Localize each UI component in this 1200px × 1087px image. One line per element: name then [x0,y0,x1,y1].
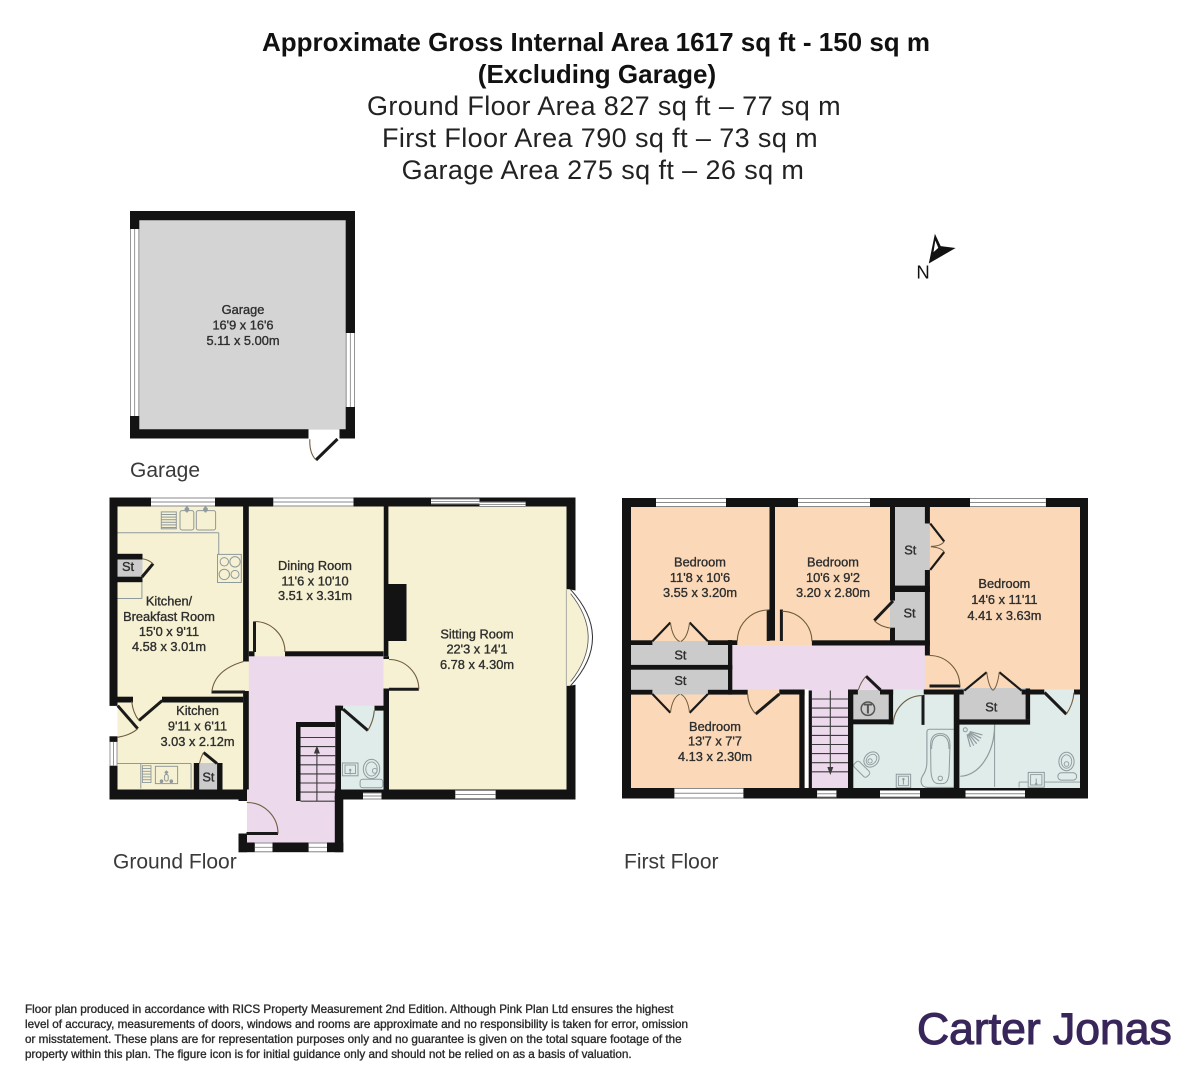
svg-text:Garage Area 275 sq ft – 26 sq: Garage Area 275 sq ft – 26 sq m [402,155,805,185]
svg-text:22'3 x 14'1: 22'3 x 14'1 [446,642,507,657]
svg-text:Garage: Garage [130,459,200,482]
svg-text:Ground Floor Area 827 sq ft –: Ground Floor Area 827 sq ft – 77 sq m [367,91,841,121]
svg-text:N: N [916,261,929,282]
svg-text:Kitchen: Kitchen [176,703,219,718]
svg-text:4.58 x 3.01m: 4.58 x 3.01m [132,639,206,654]
svg-text:10'6 x 9'2: 10'6 x 9'2 [806,570,860,585]
svg-text:St: St [674,673,687,688]
svg-text:Garage: Garage [222,302,265,317]
svg-text:level of accuracy, measurement: level of accuracy, measurements of doors… [25,1018,688,1031]
svg-text:property within this plan. The: property within this plan. The figure ic… [25,1048,632,1061]
svg-text:Sitting Room: Sitting Room [440,626,513,641]
svg-text:16'9 x 16'6: 16'9 x 16'6 [212,318,273,333]
svg-text:St: St [903,606,916,621]
svg-text:15'0 x 9'11: 15'0 x 9'11 [139,624,199,639]
svg-text:3.03 x 2.12m: 3.03 x 2.12m [161,734,235,749]
svg-text:St: St [202,770,215,785]
svg-text:Bedroom: Bedroom [674,555,726,570]
svg-text:Approximate Gross Internal Are: Approximate Gross Internal Area 1617 sq … [262,27,930,57]
svg-text:Ground Floor: Ground Floor [113,851,237,874]
svg-text:5.11 x 5.00m: 5.11 x 5.00m [206,333,279,348]
svg-text:Bedroom: Bedroom [978,576,1030,591]
svg-text:14'6 x 11'11: 14'6 x 11'11 [971,592,1037,607]
svg-text:4.41 x 3.63m: 4.41 x 3.63m [967,608,1041,623]
svg-text:Kitchen/: Kitchen/ [146,594,193,609]
svg-text:11'6 x 10'10: 11'6 x 10'10 [281,573,348,588]
svg-text:Floor plan produced in accorda: Floor plan produced in accordance with R… [25,1003,674,1016]
svg-text:St: St [985,699,998,714]
svg-text:11'8 x 10'6: 11'8 x 10'6 [670,570,730,585]
svg-text:4.13 x 2.30m: 4.13 x 2.30m [678,749,752,764]
svg-text:3.51 x 3.31m: 3.51 x 3.31m [278,588,352,603]
svg-text:St: St [674,648,687,663]
svg-text:3.20 x 2.80m: 3.20 x 2.80m [796,585,870,600]
svg-text:St: St [122,559,135,574]
svg-text:Bedroom: Bedroom [807,555,859,570]
svg-text:13'7 x 7'7: 13'7 x 7'7 [688,734,742,749]
svg-text:First Floor Area 790 sq ft – 7: First Floor Area 790 sq ft – 73 sq m [382,123,818,153]
svg-text:(Excluding Garage): (Excluding Garage) [478,59,716,89]
svg-text:6.78 x 4.30m: 6.78 x 4.30m [440,657,514,672]
svg-text:Dining Room: Dining Room [278,558,352,573]
svg-text:St: St [904,542,917,557]
svg-text:or misstatement. These plans a: or misstatement. These plans are for rep… [25,1033,682,1046]
svg-text:Breakfast Room: Breakfast Room [123,609,215,624]
svg-text:Bedroom: Bedroom [689,719,741,734]
svg-text:9'11 x 6'11: 9'11 x 6'11 [168,718,227,733]
svg-text:First Floor: First Floor [624,851,719,874]
svg-text:3.55 x 3.20m: 3.55 x 3.20m [663,585,737,600]
svg-text:Carter Jonas: Carter Jonas [917,1005,1172,1054]
